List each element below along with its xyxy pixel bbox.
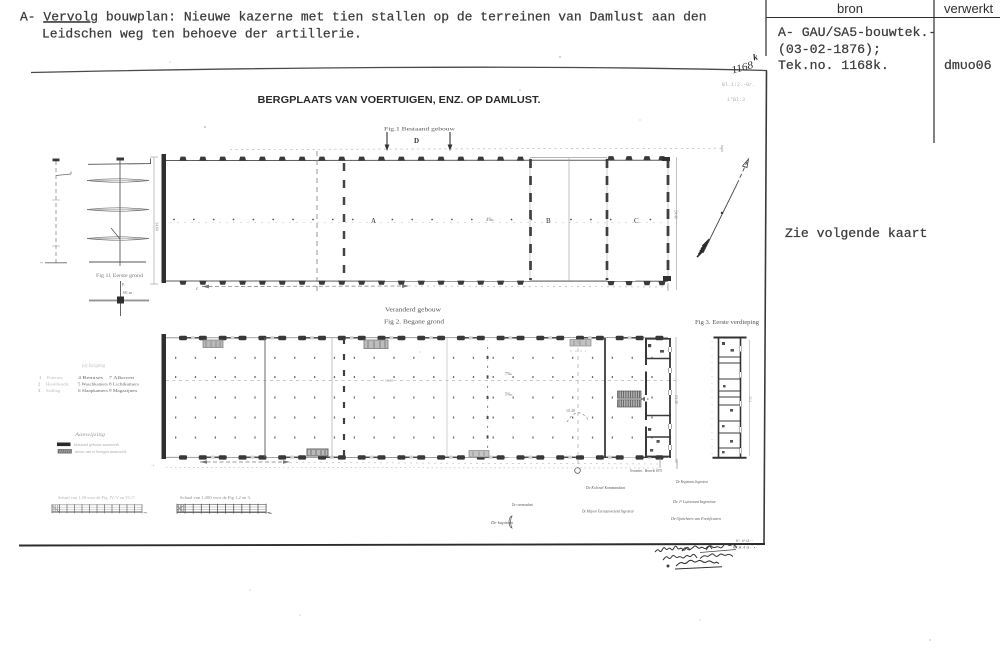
- svg-text:Fig.1 Bestaand gebouw: Fig.1 Bestaand gebouw: [384, 127, 456, 133]
- svg-text:Hoofdwacht: Hoofdwacht: [46, 382, 69, 387]
- svg-text:10.40: 10.40: [566, 408, 575, 413]
- svg-text:Aanwijzing: Aanwijzing: [74, 432, 106, 438]
- svg-text:nieuw aan te brengen muurwerk: nieuw aan te brengen muurwerk: [75, 449, 127, 454]
- svg-text:De Majoor Eerstaanwezend Ingen: De Majoor Eerstaanwezend Ingenieur: [581, 509, 634, 514]
- svg-text:Tek.no. 1168k.: Tek.no. 1168k.: [778, 58, 889, 73]
- svg-text:P.: P.: [122, 282, 125, 287]
- svg-text:Ɵ1.m: Ɵ1.m: [123, 290, 133, 295]
- svg-text:De commandant: De commandant: [511, 502, 533, 507]
- svg-text:Zie volgende kaart: Zie volgende kaart: [785, 226, 927, 241]
- svg-text:(a) Inrigting: (a) Inrigting: [82, 364, 105, 369]
- svg-text:Poternes: Poternes: [47, 375, 63, 380]
- svg-text:Leidschen weg ten behoeve der: Leidschen weg ten behoeve der artillerie…: [42, 26, 362, 41]
- svg-text:BERGPLAATS VAN VOERTUIGEN, ENZ: BERGPLAATS VAN VOERTUIGEN, ENZ. OP DAMLU…: [258, 95, 541, 106]
- svg-text:1168: 1168: [730, 60, 755, 77]
- svg-text:24.40: 24.40: [674, 210, 679, 219]
- svg-text:k: k: [752, 51, 759, 62]
- svg-text:4‰: 4‰: [486, 218, 494, 223]
- svg-text:1: 1: [39, 375, 42, 380]
- svg-text:A: A: [371, 217, 376, 225]
- svg-text:7 Alkoven: 7 Alkoven: [109, 375, 135, 380]
- svg-text:14.10: 14.10: [385, 379, 393, 383]
- svg-text:A- Vervolg bouwplan: Nieuwe ka: A- Vervolg bouwplan: Nieuwe kazerne met …: [20, 9, 707, 24]
- svg-text:→: →: [150, 463, 155, 468]
- svg-text:34.60: 34.60: [155, 222, 160, 231]
- svg-text:Fig 2. Begane grond: Fig 2. Begane grond: [384, 320, 444, 326]
- svg-text:4 Remises: 4 Remises: [78, 375, 103, 380]
- svg-text:verwerkt: verwerkt: [944, 1, 994, 16]
- svg-text:Verandert Bewerkt 1875: Verandert Bewerkt 1875: [630, 468, 662, 473]
- svg-text:c: c: [196, 287, 199, 292]
- svg-text:7‰: 7‰: [505, 371, 512, 376]
- svg-text:Schaal van 1:200 voor de Fig 1: Schaal van 1:200 voor de Fig 1,2 en 3.: [180, 495, 251, 501]
- svg-text:5 Waschkamers: 5 Waschkamers: [78, 382, 108, 387]
- svg-text:Stalling: Stalling: [46, 388, 61, 393]
- svg-text:B: B: [546, 217, 551, 225]
- svg-text:(03-02-1876);: (03-02-1876);: [778, 42, 881, 57]
- svg-text:bestaand gebouw muurwerk: bestaand gebouw muurwerk: [74, 442, 119, 447]
- svg-text:De 1ᵉ Luitenant Ingenieur: De 1ᵉ Luitenant Ingenieur: [672, 499, 716, 504]
- svg-text:De Opzichters van Fortificatie: De Opzichters van Fortificatien: [670, 516, 721, 521]
- svg-text:A- GAU/SA5-bouwtek.-: A- GAU/SA5-bouwtek.-: [778, 25, 936, 40]
- svg-text:3: 3: [38, 388, 41, 393]
- svg-text:RA.W.4·§·¯•·¯: RA.W.4·§·¯•·¯: [733, 546, 760, 551]
- svg-text:C: C: [634, 217, 639, 225]
- svg-text:2: 2: [38, 382, 41, 387]
- svg-text:D: D: [414, 137, 419, 145]
- svg-text:Bº.Nº18··: Bº.Nº18··: [736, 539, 753, 543]
- svg-text:9 Magazijnen: 9 Magazijnen: [109, 388, 138, 393]
- svg-text:De Regiments Ingenieur: De Regiments Ingenieur: [675, 479, 708, 484]
- svg-text:8 Lichtkamers: 8 Lichtkamers: [109, 382, 139, 387]
- svg-text:24.40: 24.40: [674, 395, 679, 404]
- svg-text:dmυo06: dmυo06: [944, 58, 992, 73]
- svg-text:Veranderd gebouw: Veranderd gebouw: [385, 308, 442, 314]
- svg-text:Fig 3. Eerste verdieping: Fig 3. Eerste verdieping: [695, 320, 759, 326]
- svg-text:De Kolonel Kommandant: De Kolonel Kommandant: [585, 485, 626, 490]
- svg-text:1°Bl:3: 1°Bl:3: [727, 97, 745, 103]
- svg-text:6 Slaapkamers: 6 Slaapkamers: [78, 388, 108, 393]
- svg-text:17.: 17.: [131, 496, 136, 500]
- svg-text:Bl.1:2.-Gr.: Bl.1:2.-Gr.: [722, 82, 755, 88]
- svg-text:Fig 11 Eerste grond: Fig 11 Eerste grond: [96, 274, 144, 279]
- svg-text:bron: bron: [837, 1, 863, 16]
- svg-text:5‰: 5‰: [505, 392, 512, 397]
- svg-text:Schaal van 1:50 voor de Fig. I: Schaal van 1:50 voor de Fig. IV, V en VI…: [58, 495, 131, 501]
- svg-text:24.4: 24.4: [748, 396, 752, 402]
